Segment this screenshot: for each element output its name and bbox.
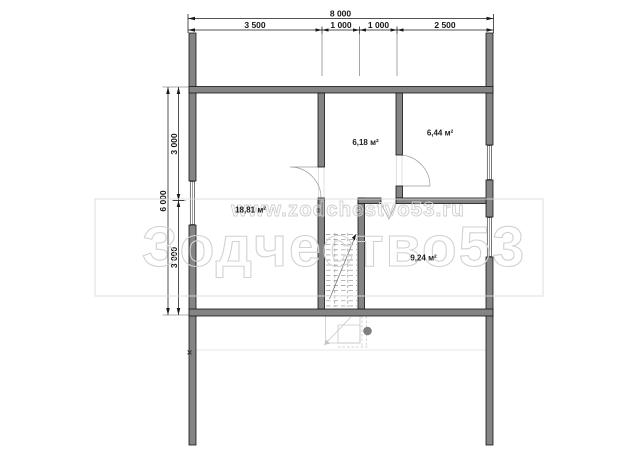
wall-bottom: [189, 309, 493, 316]
room-label-1881: 18,81 м²: [235, 206, 266, 215]
room-label-644: 6,44 м²: [427, 129, 454, 138]
under-stair-arrowhead: [324, 340, 330, 345]
dim-top-total: 8 000: [330, 9, 352, 19]
wall-interior-b-stub: [396, 186, 403, 198]
dim-top-seg3: 1 000: [368, 20, 390, 30]
wall-right-lower: [486, 257, 493, 445]
wall-interior-a: [318, 93, 325, 167]
wall-interior-b: [396, 93, 403, 155]
dim-top-seg1: 3 500: [244, 20, 266, 30]
wall-cross-marker: ×: [187, 348, 192, 358]
dim-top-seg2: 1 000: [330, 20, 352, 30]
door-swing-room3: [399, 155, 430, 186]
dimension-top: 8 000 3 500 1 000 1 000 2 500: [188, 9, 494, 77]
room-label-924: 9,24 м²: [410, 254, 437, 263]
room-label-618: 6,18 м²: [352, 138, 379, 147]
under-stair-detail: [324, 316, 372, 347]
wall-top: [189, 87, 493, 94]
stair-post-dot: [363, 327, 372, 336]
dimension-left: 3 000 6 000 3 000: [158, 87, 189, 315]
watermark-brand: Зодчество53: [142, 215, 526, 279]
dim-left-seg1: 3 000: [169, 133, 179, 155]
dim-left-total: 6 000: [158, 190, 168, 212]
door-swing-room1: [290, 167, 321, 198]
dim-top-seg4: 2 500: [434, 20, 456, 30]
floor-plan-drawing: 8 000 3 500 1 000 1 000 2 500 3 000 6 00…: [0, 0, 640, 470]
wall-right-middle: [486, 180, 493, 217]
wall-left-upper: [189, 33, 196, 181]
floor-plan-canvas: 8 000 3 500 1 000 1 000 2 500 3 000 6 00…: [0, 0, 640, 470]
